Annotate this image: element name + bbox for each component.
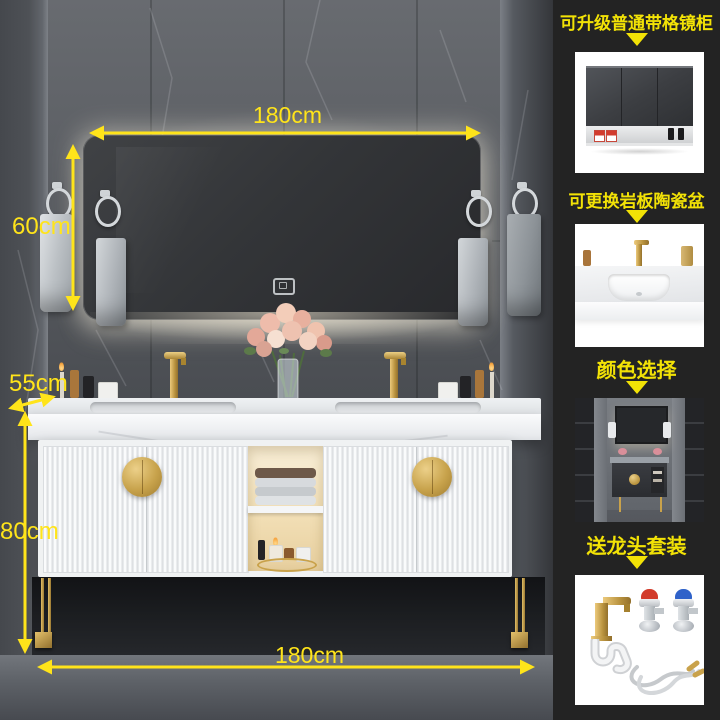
grey-towel [255,478,316,487]
flowers [618,448,627,455]
gold-faucet-right [378,352,408,400]
gold-handle-left [122,457,162,497]
white-towel [663,422,671,438]
dropper-bottle [258,540,265,560]
shelf-column-right [685,398,704,522]
dim-label-cabinet-height: 80cm [0,518,59,546]
section-title-mirror-cabinet: 可升级普通带格镜柜 [553,9,720,34]
ceramic-basin [608,274,670,301]
gold-leg [41,578,44,636]
towel-right-outer [507,214,541,316]
amber-bottle [475,370,484,398]
faucet-body [170,357,178,400]
down-arrow-icon [626,210,648,223]
dim-label-mirror-width: 180cm [230,102,345,129]
gold-faucet [595,603,608,637]
mirror-cabinet-shelf [586,126,693,146]
angle-valve-blue [669,589,699,637]
towel-ring-left-inner [95,196,121,227]
red-box [606,130,617,142]
dim-label-cabinet-width: 180cm [252,642,367,669]
dim-label-mirror-height: 60cm [12,213,71,241]
faucet-tip [401,358,406,365]
towel-left-inner [96,238,126,326]
basin-left [90,402,236,413]
candle-flame [489,362,494,371]
dark-vanity-cabinet [612,463,667,497]
marble-column [594,398,607,522]
valve-outlet [688,608,698,614]
angle-valve-red [635,589,665,637]
counter-front-edge [575,302,704,320]
mirror-cabinet-illustration [586,66,693,128]
gold-leg-foot [35,632,52,648]
flowers [653,448,662,455]
dark-mirror [615,406,668,444]
thumb-faucet-set [575,575,704,705]
thumb-color-option [575,398,704,522]
dim-label-counter-depth: 55cm [9,370,68,398]
cabinet-door-seam [657,68,658,128]
thumb-mirror-cabinet [575,52,704,173]
down-arrow-icon [626,556,648,569]
faucet-body [390,357,398,400]
open-shelf [651,467,664,493]
faucet-tip [624,604,630,612]
open-shelf-niche [248,446,323,571]
faucet-tip [181,358,186,365]
down-arrow-icon [626,33,648,46]
marble-countertop [28,398,541,440]
gold-leg [48,578,51,636]
black-bottle [678,128,684,140]
candle [490,372,494,398]
white-towel [608,422,616,438]
gold-leg [515,578,518,636]
towel-right-inner [458,238,488,326]
gold-leg [522,578,525,636]
section-title-color: 颜色选择 [553,354,720,383]
bathroom-photo: 180cm 60cm 55cm 80cm 180cm [0,0,553,720]
led-mirror [83,135,481,320]
black-bottle [83,376,94,398]
gold-leg-foot [511,632,528,648]
black-bottle [460,376,471,398]
red-box [594,130,605,142]
mirror-bottom-glow [90,312,470,340]
gold-tray [257,558,317,572]
gold-faucet-left [158,352,188,400]
grey-towel [255,487,316,496]
gold-handle-right [412,457,452,497]
section-title-basin: 可更换岩板陶瓷盆 [553,187,720,212]
shelf-column-left [575,398,594,522]
gold-leg [660,497,662,512]
brown-towel [255,468,316,478]
amber-bottle [583,250,591,266]
down-arrow-icon [626,381,648,394]
counter-front-edge [28,414,541,440]
drain-trap-and-hoses [575,639,704,703]
valve-outlet [654,608,664,614]
valve-flange [673,620,694,632]
black-bottle [668,128,674,140]
marble-column [672,398,685,522]
mirror-touch-button-icon [273,278,295,295]
amber-bottle [70,370,79,398]
vanity-cabinet [38,440,512,577]
towel-ring-right-inner [466,196,492,227]
gold-tumbler [681,246,693,266]
gold-leg [619,497,621,512]
grey-towel [255,496,316,505]
cabinet-door-seam [621,68,622,128]
options-sidebar: 可升级普通带格镜柜 可更换岩板陶瓷盆 颜色选 [553,0,720,720]
basin-right [335,402,481,413]
product-detail-image: 180cm 60cm 55cm 80cm 180cm 可升级普通带格镜柜 可更换… [0,0,720,720]
gold-handle [629,474,640,485]
drop-shadow [590,148,689,155]
section-title-faucet-set: 送龙头套装 [553,530,720,559]
niche-shelf [248,506,323,513]
valve-flange [639,620,660,632]
thumb-ceramic-basin [575,224,704,347]
gold-faucet [636,244,642,266]
